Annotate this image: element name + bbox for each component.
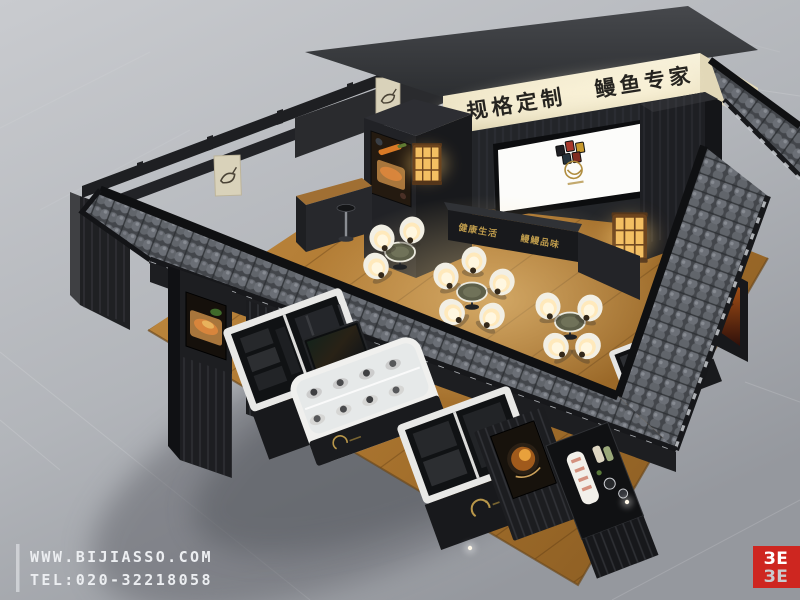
noren-banner [214, 155, 241, 196]
footer-divider [16, 544, 20, 592]
japanese-lantern-icon [407, 143, 447, 185]
bijiasso-logo-badge: ЗЕ ЗЕ [753, 546, 800, 588]
footer-website: WWW.BIJIASSO.COM [30, 548, 213, 566]
footer-phone: TEL:020-32218058 [30, 571, 213, 589]
booth-render: 规格定制 鳗鱼专家 [0, 0, 800, 600]
booth-render-canvas: 规格定制 鳗鱼专家 [0, 0, 800, 600]
front-lightbox-pillar [168, 266, 232, 478]
badge-glyph-row1: ЗЕ [764, 549, 789, 569]
food-graphic-lightbox [371, 131, 411, 207]
badge-glyph-row2: ЗЕ [764, 567, 789, 587]
